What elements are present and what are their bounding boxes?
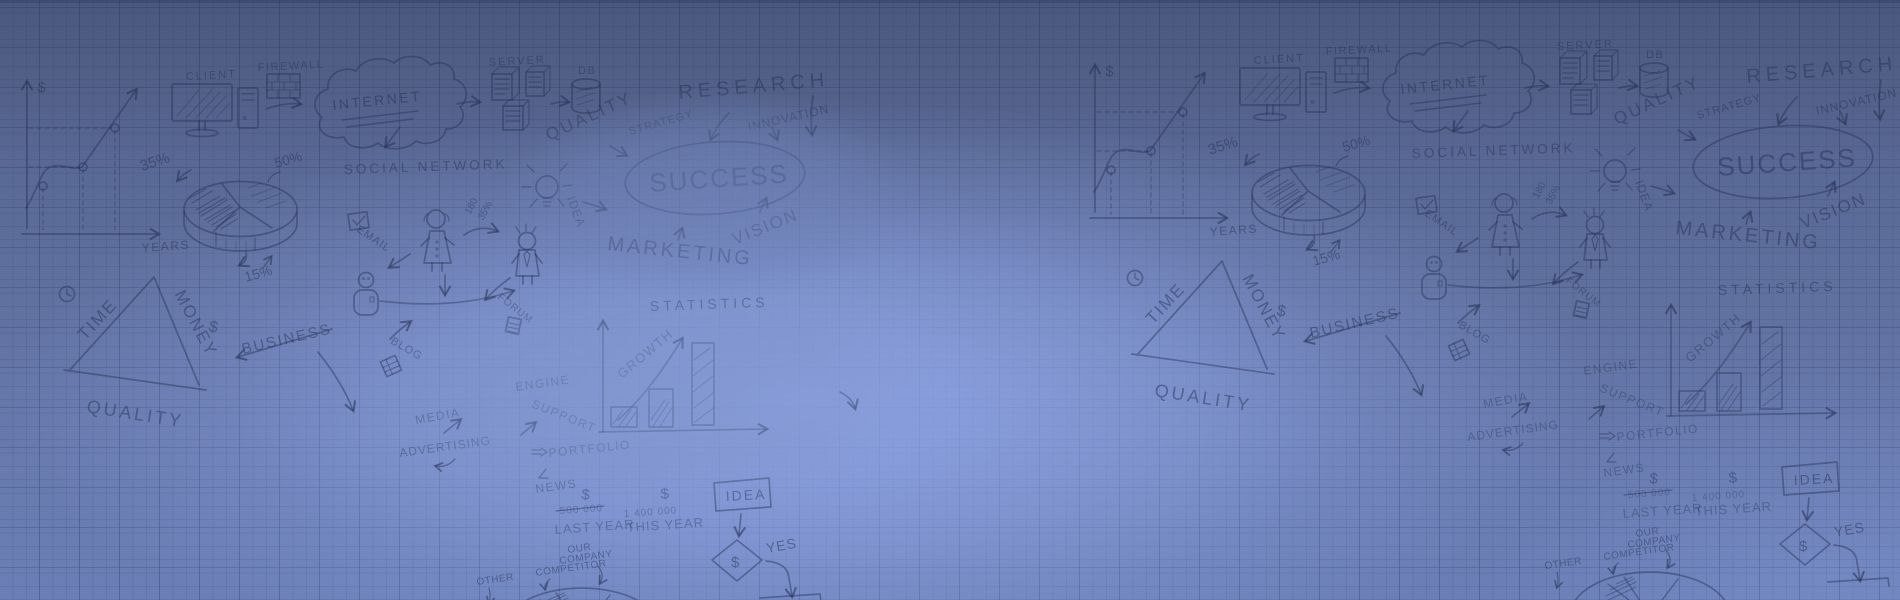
svg-text:$: $ — [731, 554, 740, 571]
